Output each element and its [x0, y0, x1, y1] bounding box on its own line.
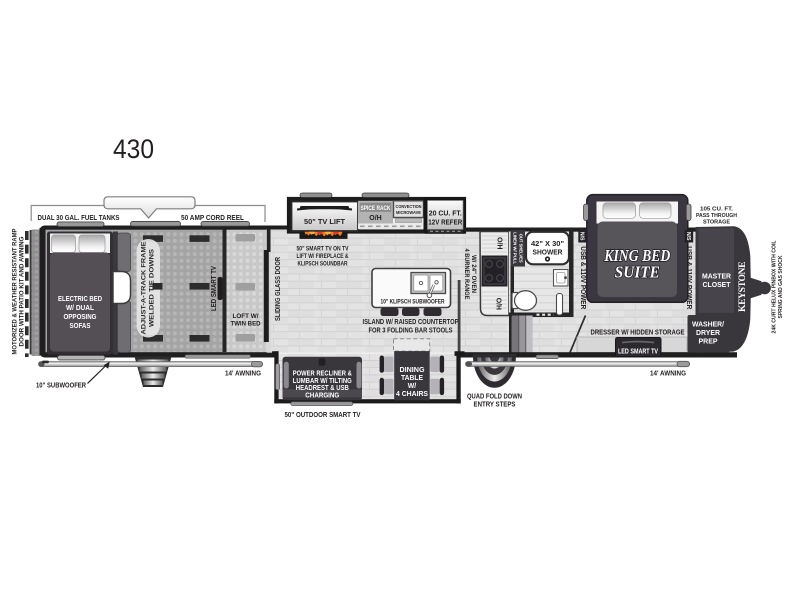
- svg-text:LED SMART TV: LED SMART TV: [211, 266, 218, 311]
- svg-text:CHARGING: CHARGING: [305, 392, 339, 399]
- svg-text:TWIN BED: TWIN BED: [231, 320, 261, 327]
- svg-text:4 BURNER RANGE: 4 BURNER RANGE: [463, 249, 470, 301]
- svg-text:STORAGE: STORAGE: [703, 220, 730, 226]
- svg-text:LIFT W/ FIREPLACE &: LIFT W/ FIREPLACE &: [297, 253, 349, 260]
- svg-text:TABLE: TABLE: [401, 375, 423, 382]
- svg-text:SLIDING GLASS DOOR: SLIDING GLASS DOOR: [275, 257, 282, 321]
- svg-text:USB & 110V POWER: USB & 110V POWER: [579, 246, 586, 309]
- svg-text:10" KLIPSCH SUBWOOFER: 10" KLIPSCH SUBWOOFER: [381, 299, 445, 306]
- svg-text:4 CHAIRS: 4 CHAIRS: [396, 391, 428, 398]
- svg-text:POWER RECLINER &: POWER RECLINER &: [293, 371, 352, 378]
- svg-text:KEYSTONE: KEYSTONE: [737, 261, 748, 312]
- svg-text:O/H: O/H: [369, 215, 381, 222]
- svg-text:W/ 24" OVEN: W/ 24" OVEN: [470, 255, 477, 293]
- svg-text:OUT SHELVES: OUT SHELVES: [518, 234, 523, 263]
- svg-text:12V REFER: 12V REFER: [428, 218, 462, 227]
- svg-text:DUAL 30 GAL. FUEL TANKS: DUAL 30 GAL. FUEL TANKS: [38, 213, 120, 222]
- svg-text:N/S: N/S: [685, 232, 691, 241]
- svg-text:HEADREST & USB: HEADREST & USB: [296, 385, 349, 392]
- svg-text:50" OUTDOOR SMART TV: 50" OUTDOOR SMART TV: [285, 410, 361, 419]
- svg-text:20 CU. FT.: 20 CU. FT.: [429, 209, 462, 218]
- svg-text:14' AWNING: 14' AWNING: [225, 371, 261, 378]
- svg-text:105 CU. FT.: 105 CU. FT.: [700, 207, 733, 213]
- svg-text:LED SMART TV: LED SMART TV: [618, 349, 658, 356]
- svg-text:ELECTRIC BED: ELECTRIC BED: [58, 294, 102, 303]
- svg-text:DINING: DINING: [400, 367, 425, 374]
- svg-text:MOTORIZED & WEATHER RESISTANT: MOTORIZED & WEATHER RESISTANT RAMP: [11, 229, 18, 355]
- svg-text:ISLAND W/ RAISED COUNTERTOP: ISLAND W/ RAISED COUNTERTOP: [363, 317, 459, 326]
- svg-text:24K CURT HELUX PINBOX WITH COI: 24K CURT HELUX PINBOX WITH COIL: [772, 240, 778, 333]
- svg-text:W/ DUAL: W/ DUAL: [66, 303, 95, 312]
- svg-text:DRESSER W/ HIDDEN STORAGE: DRESSER W/ HIDDEN STORAGE: [591, 328, 685, 337]
- svg-text:LUMBAR W/ TILTING: LUMBAR W/ TILTING: [293, 378, 352, 385]
- svg-text:PREP: PREP: [699, 337, 718, 346]
- svg-text:CLOSET: CLOSET: [703, 280, 732, 289]
- svg-text:LOFT W/: LOFT W/: [233, 313, 259, 320]
- svg-text:SHOWER: SHOWER: [533, 248, 564, 257]
- svg-text:50" TV LIFT: 50" TV LIFT: [304, 217, 346, 226]
- svg-text:FOR 3 FOLDING BAR STOOLS: FOR 3 FOLDING BAR STOOLS: [369, 326, 453, 335]
- svg-text:CONVECTION: CONVECTION: [396, 204, 422, 210]
- svg-text:N/S: N/S: [579, 232, 585, 241]
- svg-text:50" SMART TV ON TV: 50" SMART TV ON TV: [297, 246, 349, 253]
- svg-text:14' AWNING: 14' AWNING: [650, 371, 686, 378]
- svg-text:430: 430: [113, 134, 154, 164]
- svg-text:MICROWAVE: MICROWAVE: [396, 210, 422, 216]
- svg-text:ADJUST-A-TRACK FRAME: ADJUST-A-TRACK FRAME: [141, 241, 148, 335]
- svg-text:OPPOSING: OPPOSING: [64, 312, 97, 321]
- svg-text:USB & 110V POWER: USB & 110V POWER: [685, 246, 692, 309]
- svg-text:50 AMP CORD REEL: 50 AMP CORD REEL: [181, 213, 244, 222]
- svg-text:PASS THROUGH: PASS THROUGH: [696, 213, 737, 219]
- svg-text:SPRING AND GAS SHOCK: SPRING AND GAS SHOCK: [778, 255, 784, 319]
- svg-text:O/H: O/H: [495, 298, 502, 310]
- svg-text:DOOR WITH PATIO KIT AND AWNING: DOOR WITH PATIO KIT AND AWNING: [19, 236, 26, 346]
- svg-text:W/: W/: [408, 383, 417, 390]
- svg-text:LINEN W/ PULL: LINEN W/ PULL: [512, 232, 517, 264]
- svg-text:SPICE RACK: SPICE RACK: [361, 205, 391, 212]
- svg-text:SUITE: SUITE: [615, 263, 660, 282]
- svg-text:SOFAS: SOFAS: [70, 321, 91, 330]
- svg-text:10" SUBWOOFER: 10" SUBWOOFER: [36, 383, 86, 390]
- svg-text:O/H: O/H: [496, 237, 503, 249]
- svg-text:ENTRY STEPS: ENTRY STEPS: [474, 400, 516, 409]
- svg-text:KLIPSCH SOUNDBAR: KLIPSCH SOUNDBAR: [298, 261, 348, 268]
